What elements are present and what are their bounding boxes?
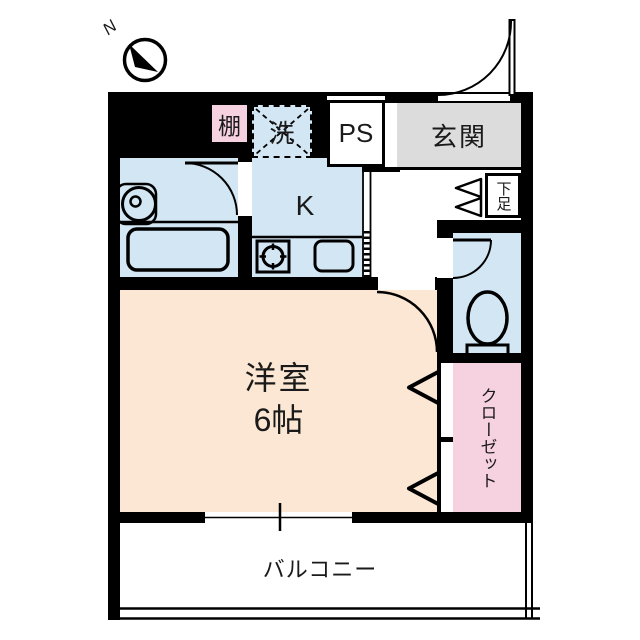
balcony-window xyxy=(205,512,352,523)
main-room-size-label: 6帖 xyxy=(120,400,437,436)
compass-north-label: N xyxy=(96,14,124,42)
entrance-door-icon xyxy=(438,20,515,95)
toilet-door-gap xyxy=(437,238,453,278)
wall-toilet-bottom xyxy=(440,353,533,363)
compass-icon xyxy=(125,40,166,81)
floorplan-canvas: N 棚 洗 PS 玄関 下足 K 洋室 6帖 クローゼット バルコニー xyxy=(0,0,640,640)
toilet-floor xyxy=(453,233,521,353)
wall-top-entry-left xyxy=(385,92,438,103)
wall-toilet-top xyxy=(440,220,533,233)
closet-label: クローゼット xyxy=(470,368,504,508)
wall-hall-top xyxy=(373,167,400,172)
wall-left xyxy=(108,92,120,620)
wall-right xyxy=(521,92,533,523)
wall-washer-ps xyxy=(312,92,327,167)
bathroom-floor xyxy=(120,158,238,277)
entrance-door-gap xyxy=(438,92,510,103)
balcony-label: バルコニー xyxy=(120,555,520,581)
kitchen-label: K xyxy=(275,176,335,236)
wall-room-top xyxy=(108,277,378,290)
shelf-label: 棚 xyxy=(212,105,247,142)
washer-label: 洗 xyxy=(252,105,312,158)
wall-top-over-ps xyxy=(327,92,385,96)
entrance-label: 玄関 xyxy=(397,103,521,167)
pipe-space-label: PS xyxy=(327,100,385,167)
bathroom-door-gap xyxy=(238,162,252,216)
shoe-cabinet-label: 下足 xyxy=(485,173,521,218)
entry-step-line xyxy=(397,167,521,170)
main-room-type-label: 洋室 xyxy=(120,358,437,394)
kitchen-hall-opening xyxy=(363,172,371,278)
shoe-bifold-door-icon xyxy=(456,179,481,216)
closet-opening-divider xyxy=(441,437,453,442)
